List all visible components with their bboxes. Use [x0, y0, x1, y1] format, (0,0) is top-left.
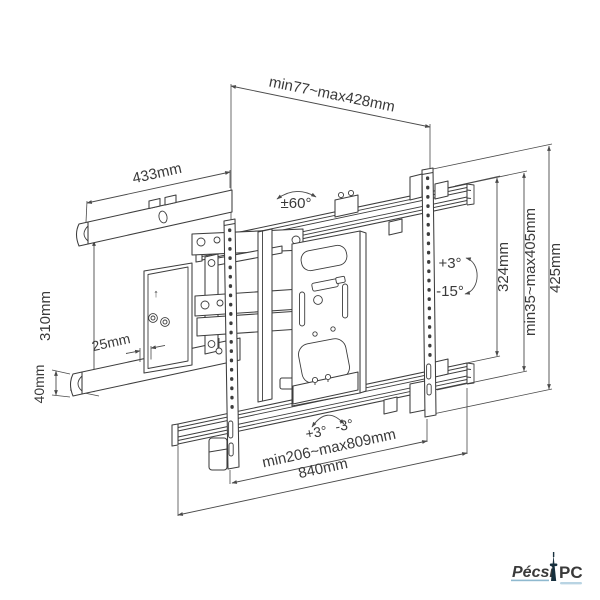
label-depth-range: min77~max428mm — [268, 74, 397, 116]
label-tilt-up: +3° — [438, 255, 461, 272]
label-level-minus: -3° — [334, 416, 355, 435]
label-arm-length: 433mm — [131, 160, 184, 187]
brand-logo: Pécsi PC — [511, 552, 583, 584]
vertical-mount-bar — [258, 229, 272, 402]
label-vertical-range: min35~max405mm — [522, 208, 539, 336]
label-offset-step: 25mm — [90, 330, 131, 354]
keyhole-arrow-icon: ↑ — [153, 288, 159, 300]
label-arm-height: 40mm — [31, 365, 47, 404]
drawing-svg: ↑ — [0, 0, 600, 600]
label-wall-plate-height: 310mm — [37, 291, 54, 341]
label-inner-height: 324mm — [495, 242, 512, 292]
label-level-plus: +3° — [304, 422, 328, 442]
logo-tagline-bar — [560, 582, 582, 584]
tv-mount-technical-drawing: ↑ — [0, 0, 600, 600]
label-swivel: ±60° — [281, 195, 312, 212]
logo-text-second: PC — [559, 563, 583, 582]
label-tilt-down: -15° — [436, 283, 464, 300]
logo-text-first: Pécsi — [512, 564, 554, 581]
tilt-arc — [465, 258, 477, 294]
label-bracket-height: 425mm — [547, 243, 564, 293]
logo-underline — [511, 580, 549, 582]
